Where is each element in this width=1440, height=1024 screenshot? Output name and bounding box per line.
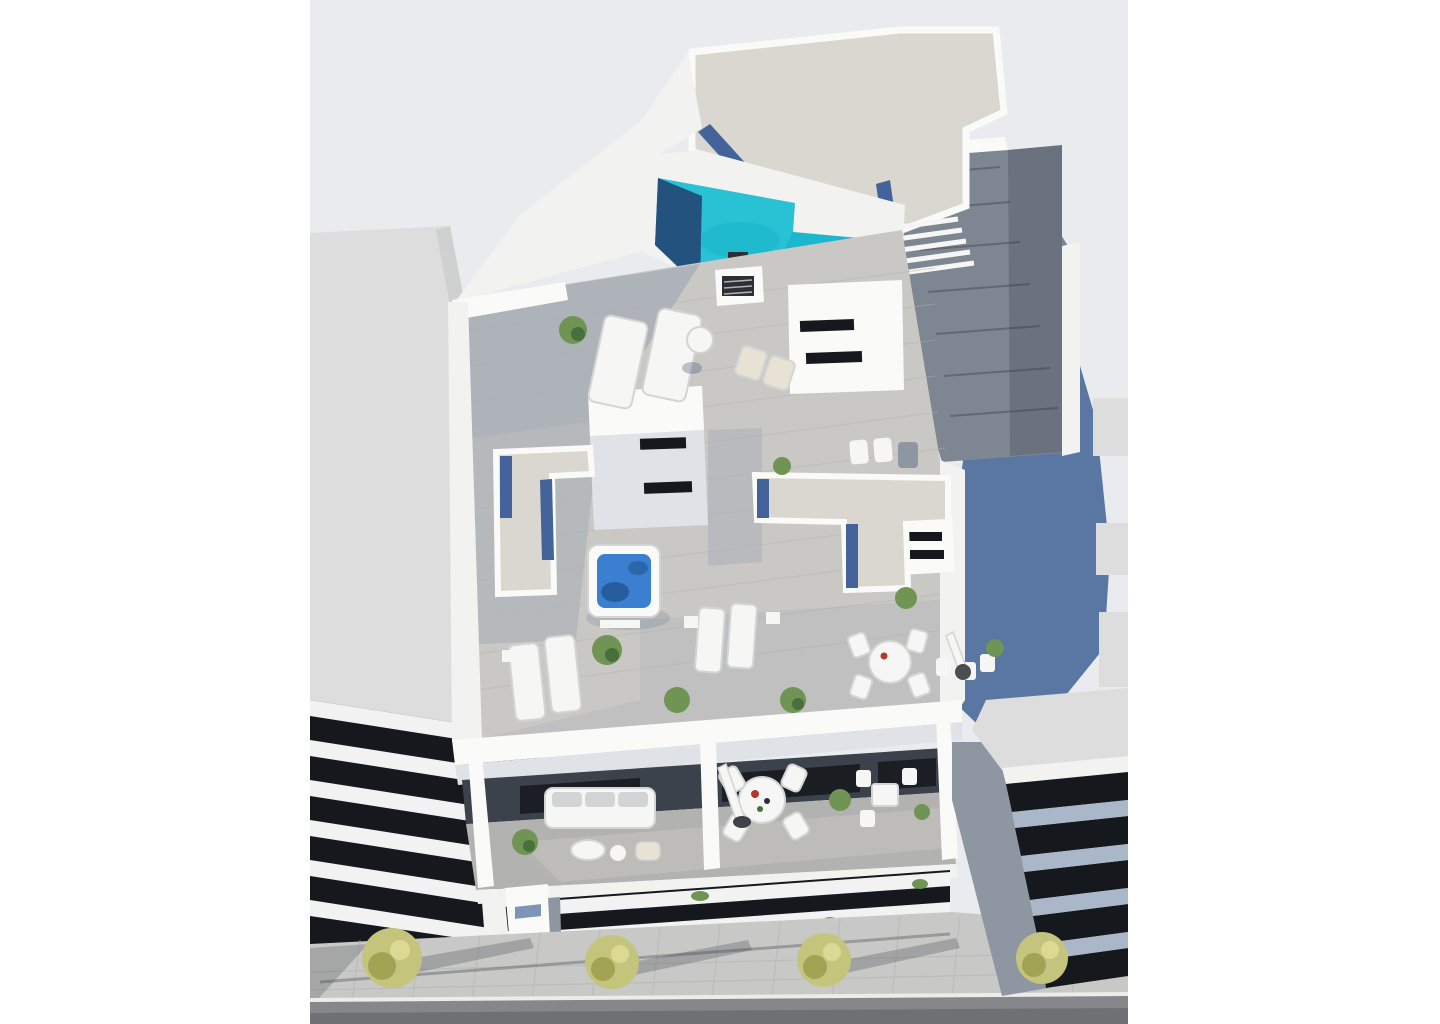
page-margin-right xyxy=(1128,0,1440,1024)
tree-canopy-light xyxy=(390,940,410,960)
sun-lounger xyxy=(727,603,757,669)
gravel-strip xyxy=(757,479,769,518)
potted-plant-dark xyxy=(523,840,535,852)
skylight-slot xyxy=(644,481,692,494)
balcony-plant xyxy=(691,891,709,901)
balcony-plant xyxy=(912,879,928,889)
neighbor-notch xyxy=(1096,523,1128,575)
gravel-strip xyxy=(500,456,512,518)
tree-canopy-dark xyxy=(368,952,396,980)
roof-box-slot xyxy=(908,532,942,541)
parasol-top xyxy=(687,327,713,353)
table-item-green xyxy=(757,806,763,812)
parasol-base xyxy=(733,816,751,828)
parasol-base xyxy=(955,664,971,680)
tree-canopy-dark xyxy=(591,957,615,981)
page-margin-left xyxy=(0,0,310,1024)
street-tree xyxy=(362,928,422,988)
neighbor-notch xyxy=(1093,398,1128,456)
neighbor-notch xyxy=(1099,612,1128,687)
table-item-red xyxy=(881,653,888,660)
side-table xyxy=(684,616,698,628)
tree-canopy-light xyxy=(823,943,841,961)
deck-chair xyxy=(849,439,869,464)
chair xyxy=(936,658,951,676)
coffee-table xyxy=(571,840,605,860)
road xyxy=(310,994,1128,1024)
potted-plant-dark xyxy=(792,698,804,710)
sun-lounger xyxy=(695,607,725,673)
jacuzzi-water-dark xyxy=(601,582,629,602)
side-table xyxy=(766,612,780,624)
potted-plant-dark xyxy=(571,327,585,341)
deck-chair xyxy=(873,437,893,462)
render-canvas xyxy=(0,0,1440,1024)
pouf xyxy=(636,842,660,860)
skylight-slot xyxy=(806,351,862,364)
potted-plant xyxy=(986,639,1004,657)
tree-canopy-dark xyxy=(803,955,827,979)
potted-plant-dark xyxy=(605,648,619,662)
street-tree xyxy=(585,935,639,989)
potted-plant xyxy=(829,789,851,811)
table-item-red xyxy=(751,790,759,798)
upper-deck-parapet-right xyxy=(1062,242,1080,456)
window xyxy=(514,903,542,920)
sofa-cushion xyxy=(585,792,615,807)
chair xyxy=(902,768,917,785)
roof-box-slot xyxy=(910,550,944,559)
skylight-room-right xyxy=(788,280,904,394)
chair xyxy=(856,770,871,787)
potted-plant xyxy=(895,587,917,609)
skylight-slot xyxy=(800,319,854,332)
tree-canopy-light xyxy=(611,945,629,963)
table-item-dark xyxy=(764,798,770,804)
street-tree xyxy=(797,933,851,987)
skylight-slot xyxy=(640,437,686,450)
potted-plant xyxy=(773,457,791,475)
side-table-round xyxy=(610,845,626,861)
potted-plant xyxy=(664,687,690,713)
tree-canopy-dark xyxy=(1022,953,1046,977)
gravel-strip xyxy=(846,524,858,588)
small-table xyxy=(872,784,898,806)
potted-plant xyxy=(592,635,622,665)
chair xyxy=(860,810,875,827)
sofa-cushion xyxy=(618,792,648,807)
street-tree xyxy=(1016,932,1068,984)
side-table xyxy=(502,650,516,662)
gravel-strip xyxy=(540,479,554,560)
sofa-cushion xyxy=(552,792,582,807)
deck-lounger-gray xyxy=(898,442,918,468)
jacuzzi-step xyxy=(600,620,640,628)
tree-canopy-light xyxy=(1041,941,1059,959)
dining-table-round xyxy=(869,641,911,683)
potted-plant xyxy=(914,804,930,820)
jacuzzi-water-dark xyxy=(628,561,648,575)
parasol-base-shadow xyxy=(682,362,702,374)
jacuzzi xyxy=(586,545,670,630)
dining-table-round xyxy=(739,777,785,823)
right-building-roof xyxy=(972,688,1128,770)
